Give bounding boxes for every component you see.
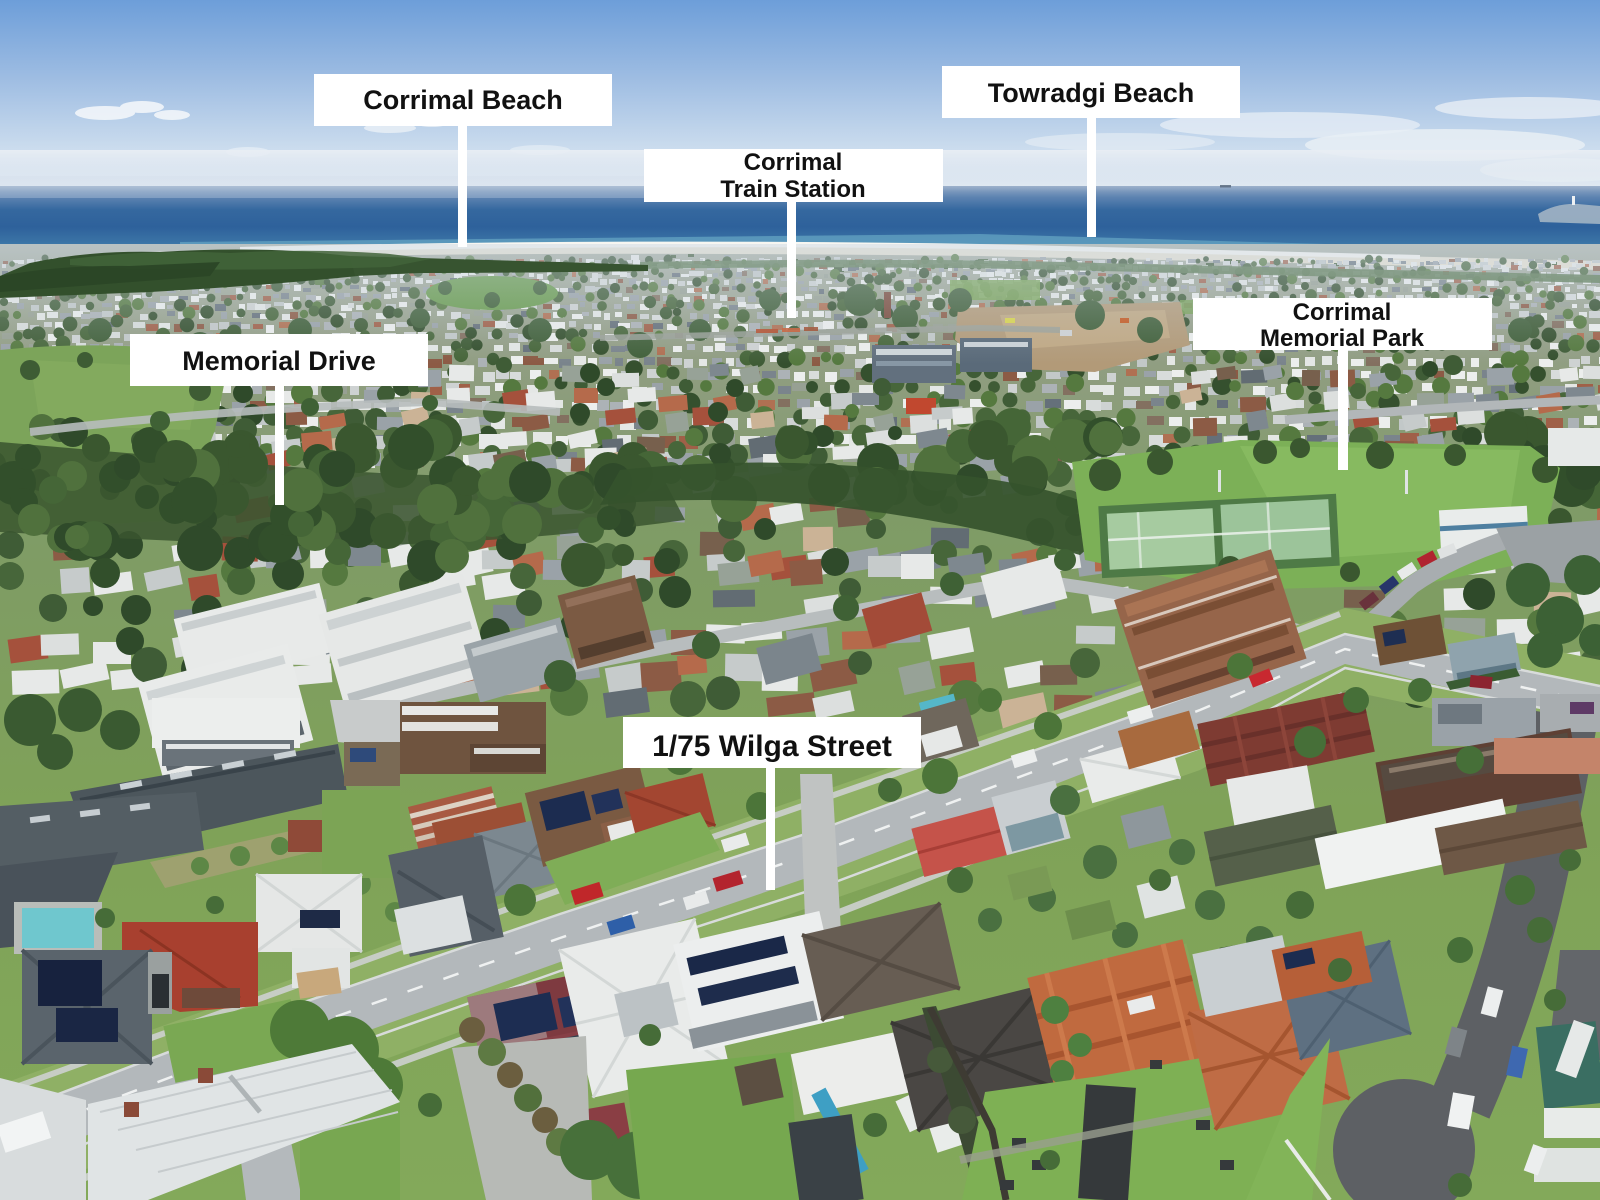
svg-text:Towradgi Beach: Towradgi Beach xyxy=(988,78,1195,108)
svg-text:Corrimal: Corrimal xyxy=(1293,299,1392,326)
svg-text:Memorial Drive: Memorial Drive xyxy=(182,346,376,376)
svg-text:Memorial Park: Memorial Park xyxy=(1260,325,1425,352)
svg-text:Train Station: Train Station xyxy=(720,176,865,203)
svg-text:1/75 Wilga Street: 1/75 Wilga Street xyxy=(652,730,892,763)
svg-text:Corrimal: Corrimal xyxy=(744,149,843,176)
svg-text:Corrimal Beach: Corrimal Beach xyxy=(363,85,563,115)
